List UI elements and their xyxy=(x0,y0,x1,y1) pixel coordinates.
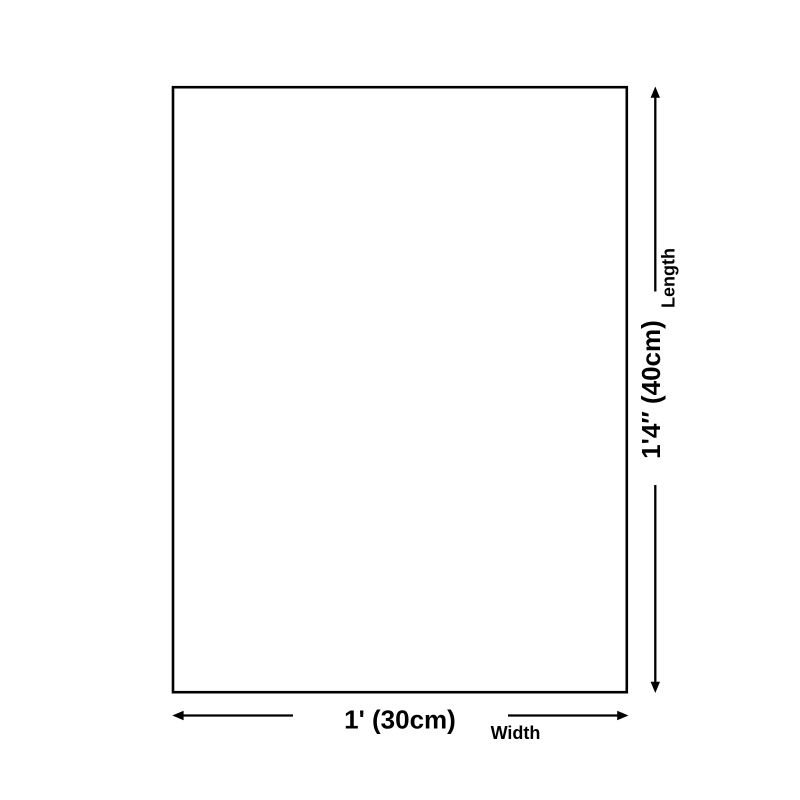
svg-text:Width: Width xyxy=(491,723,541,743)
svg-text:Length: Length xyxy=(659,248,679,308)
svg-text:1' (30cm): 1' (30cm) xyxy=(344,705,456,735)
svg-text:1'4″ (40cm): 1'4″ (40cm) xyxy=(636,320,666,459)
